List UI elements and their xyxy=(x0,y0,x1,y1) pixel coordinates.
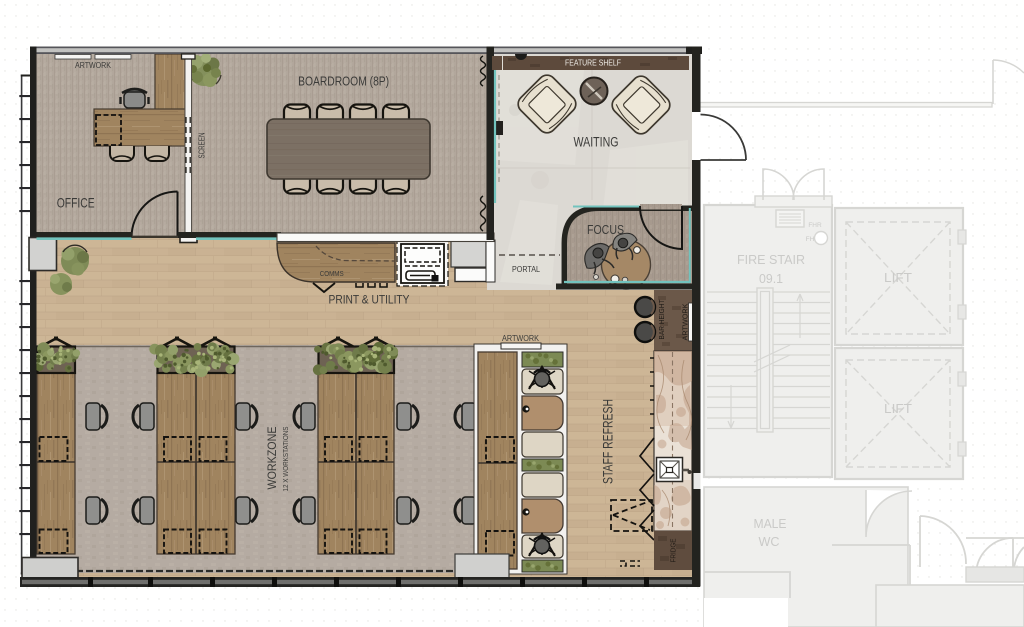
svg-text:COMMS: COMMS xyxy=(320,269,344,278)
svg-text:LIFT: LIFT xyxy=(884,271,912,285)
svg-text:PORTAL: PORTAL xyxy=(512,265,540,274)
svg-text:FHR: FHR xyxy=(808,222,822,229)
svg-text:09.1: 09.1 xyxy=(759,271,783,286)
svg-text:MALE: MALE xyxy=(754,517,787,531)
svg-text:WAITING: WAITING xyxy=(574,135,619,150)
svg-text:FIRE STAIR: FIRE STAIR xyxy=(737,252,805,267)
svg-text:ARTWORK: ARTWORK xyxy=(502,334,540,343)
svg-text:PRINT & UTILITY: PRINT & UTILITY xyxy=(329,293,410,307)
svg-text:FH: FH xyxy=(806,236,815,243)
svg-text:ARTWORK: ARTWORK xyxy=(683,303,690,340)
svg-text:OFFICE: OFFICE xyxy=(57,195,95,211)
svg-text:WORKZONE: WORKZONE xyxy=(267,426,279,489)
svg-text:SCREEN: SCREEN xyxy=(198,132,207,158)
svg-text:WC: WC xyxy=(759,535,780,549)
svg-text:BAR HEIGHT: BAR HEIGHT xyxy=(659,299,666,340)
svg-text:BOARDROOM (8P): BOARDROOM (8P) xyxy=(298,74,389,89)
svg-text:STAFF REFRESH: STAFF REFRESH xyxy=(601,399,616,484)
svg-text:12 X WORKSTATIONS: 12 X WORKSTATIONS xyxy=(283,426,290,491)
svg-text:ARTWORK: ARTWORK xyxy=(75,61,112,70)
svg-text:LIFT: LIFT xyxy=(884,402,912,416)
svg-text:FOCUS: FOCUS xyxy=(587,223,624,237)
svg-text:FRIDGE: FRIDGE xyxy=(671,538,678,562)
svg-text:FEATURE SHELF: FEATURE SHELF xyxy=(565,59,621,68)
